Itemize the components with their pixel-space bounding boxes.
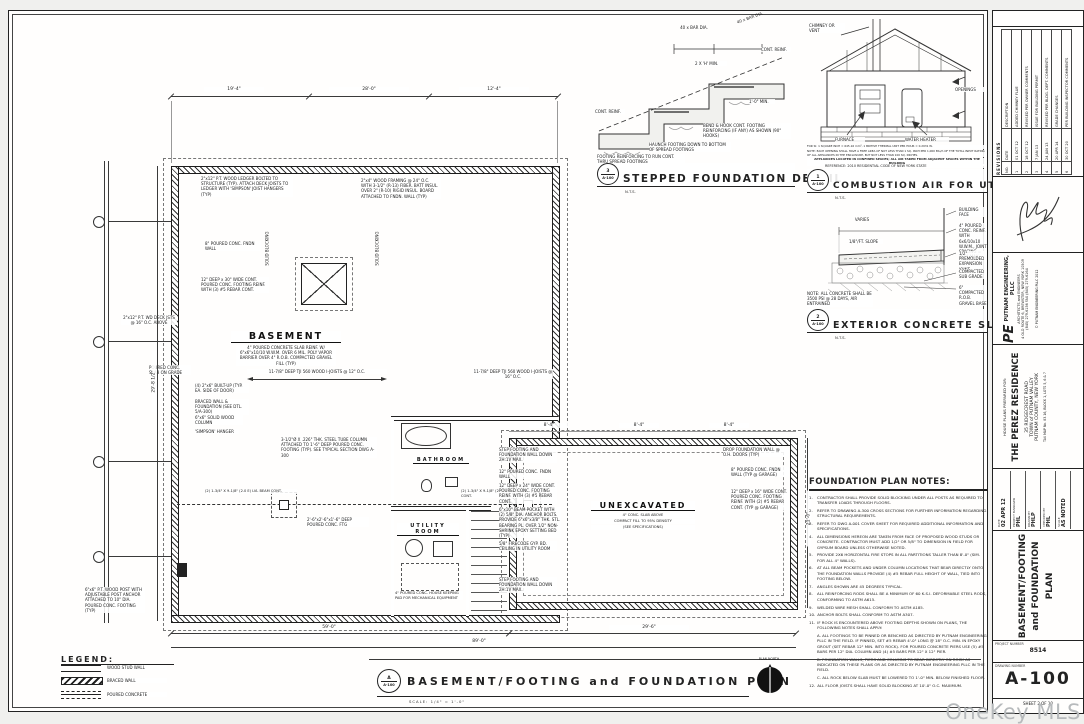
slab-detail-title: 2A-100 EXTERIOR CONCRETE SLAB DTL. — [807, 309, 987, 333]
dim-bottom-seg2: 29'-6" — [609, 625, 689, 630]
wood-post-note: 6"x6" P.T. WOOD POST WITH ADJUSTABLE POS… — [85, 587, 145, 613]
plan-north-label: PLAN NORTH — [749, 657, 789, 661]
concrete-psi-note: NOTE: ALL CONCRETE SHALL BE 3500 PSI @ 2… — [807, 291, 873, 307]
notes-title: FOUNDATION PLAN NOTES: — [809, 477, 987, 491]
deck-post — [93, 456, 105, 468]
utility-equipment-unit — [433, 541, 453, 557]
dim-line-overall — [171, 647, 796, 648]
step-bend-note: BEND & HOOK CONT. FOOTING REINFORCING (I… — [703, 123, 791, 139]
unexcavated-note-2: COMPACT FILL TO 95% DENSITY — [591, 519, 695, 524]
firm-name: PUTNAM ENGINEERING, PLLC — [1004, 255, 1016, 322]
dim-garage-2: 8'-4" — [619, 423, 659, 428]
tb-info-rotated: DATE 02 APR 12 PROJECT MANAGER PHL DRAWN… — [996, 471, 1078, 529]
lvl-beam-line — [177, 504, 552, 505]
tb-project-number-section: PROJECT NUMBER 8514 — [993, 641, 1083, 663]
note-item: A. ALL FOOTINGS TO BE PINNED OR BENCHED … — [809, 633, 987, 654]
wall-12-note: 12" POURED CONC. FNDN WALL — [499, 469, 551, 479]
building-face-label: BUILDING FACE — [959, 207, 987, 217]
note-item: 4.ALL DIMENSIONS HEREON ARE TAKEN FROM F… — [809, 534, 987, 550]
legend-label-braced: BRACED WALL — [107, 678, 167, 683]
openings-label: OPENINGS — [955, 87, 985, 92]
dim-left: 29'-8 1/2" — [152, 351, 157, 413]
ledger-note: 2"x12" P.T. WOOD LEDGER BOLTED TO STRUCT… — [201, 176, 293, 197]
note-item: 7.ANGLES SHOWN ARE 45 DEGREES TYPICAL. — [809, 584, 987, 589]
detail-scale: N.T.S. — [835, 195, 846, 200]
wood-column-block — [177, 563, 187, 577]
room-label-basement: BASEMENT — [231, 331, 341, 343]
slab-detail-drawing — [804, 203, 974, 303]
tb-revisions-rotated: REVISIONS NO. DATE DESCRIPTION 101 OCT 1… — [996, 29, 1078, 175]
deck-post — [93, 216, 105, 228]
drawing-number-value: A-100 — [993, 669, 1083, 689]
rev-col-no: NO. — [1002, 162, 1012, 175]
lvl-beam-note: (2) 1-3/4" X 9-1/8" (2.0 E) LVL BEAM CON… — [205, 489, 297, 494]
note-item: 9.WELDED WIRE MESH SHALL CONFORM TO ASTM… — [809, 605, 987, 610]
deck-tie — [108, 221, 171, 222]
garage-wall-note: 8" POURED CONC. FNDN WALL (TYP @ GARAGE) — [731, 467, 789, 477]
tb-drawing-number-section: DRAWING NUMBER A-100 — [993, 663, 1083, 699]
plan-scale: SCALE: 1/4" = 1'-0" — [409, 699, 465, 704]
dim-bottom-seg1: 59'-0" — [289, 625, 369, 630]
plan-marker: AA-100 — [377, 669, 401, 693]
tick — [793, 630, 799, 636]
note-item: 6.AT ALL BEAM POCKETS AND UNDER COLUMN L… — [809, 565, 987, 581]
step-2h-label: 2 X 'H' MIN. — [695, 61, 727, 66]
sink — [445, 477, 458, 487]
legend-label-stud: WOOD STUD WALL — [107, 665, 167, 670]
slab-slope-label: 1/8"/FT. SLOPE — [849, 239, 883, 244]
revisions-header-row: NO. DATE DESCRIPTION — [1002, 30, 1012, 175]
title-block: REVISIONS NO. DATE DESCRIPTION 101 OCT 1… — [992, 10, 1084, 714]
note-item: 3.REFER TO DWG A-001 COVER SHEET FOR REQ… — [809, 521, 987, 532]
tb-drawing-title-rotated: BASEMENT/FOOTING and FOUNDATION PLAN — [996, 533, 1078, 639]
footing-30-note: 12" DEEP x 30" WIDE CONT. POURED CONC. F… — [201, 277, 269, 293]
furnace-label: FURNACE — [835, 137, 865, 142]
simpson-hanger-note: 'SIMPSON' HANGER — [195, 429, 239, 434]
slab-varies-dim: VARIES — [847, 217, 877, 222]
note-item: 10.ANCHOR BOLTS SHALL CONFORM TO ASTM A3… — [809, 612, 987, 617]
garage-footing-note: 12" DEEP x 16" WIDE CONT. POURED CONC. F… — [731, 489, 789, 510]
framing-2x4-note: 2"x4" WOOD FRAMING @ 24" O.C. WITH 3-1/2… — [361, 178, 441, 199]
basement-wall-bottom — [171, 615, 560, 623]
gravel-base-note: 6" COMPACTED R.O.B. GRAVEL BASE — [959, 285, 987, 306]
deck-post — [93, 336, 105, 348]
deck-post — [93, 551, 105, 563]
revisions-rows: 101 OCT 12ADDED CHIMNEY FLUE 218 OCT 12R… — [1012, 30, 1072, 175]
revision-row: 424 JAN 13REVISED PER BLDG. DEPT. COMMEN… — [1042, 30, 1052, 175]
beam-pocket-note: 6"x10" BEAM POCKET WITH (2) 5/8" DIA. AN… — [499, 507, 561, 538]
signature-scribble — [993, 177, 1079, 251]
note-item: C. ALL ROCK BELOW SLAB MUST BE LOWERED T… — [809, 675, 987, 680]
combustion-air-drawing — [807, 19, 985, 145]
combustion-detail-title: 1A-100 COMBUSTION AIR FOR UTILITY ROOM — [807, 169, 987, 193]
fireplace — [301, 263, 347, 305]
chimney-label: CHIMNEY OR VENT — [809, 23, 845, 33]
garage-wall-top — [509, 438, 798, 446]
stepped-detail-title: 3A-100 STEPPED FOUNDATION DETAIL — [597, 163, 795, 187]
deck-joist-note: 2"x12" P.T. WD DECK JSTS @ 16" O.C. ABOV… — [121, 315, 177, 325]
partition-stair — [466, 506, 469, 617]
detail-marker-3: 3A-100 — [597, 163, 619, 185]
basement-slab-note: 4" POURED CONCRETE SLAB REINF. W/ 6"x6"x… — [236, 345, 336, 366]
note-item: 2.REFER TO DRAWING A-300 CROSS SECTIONS … — [809, 508, 987, 519]
step-cont-reinf-label: CONT. REINF. — [595, 109, 625, 114]
note-item: 12.ALL FLOOR JOISTS SHALL HAVE SOLID BLO… — [809, 683, 987, 688]
north-arrow-icon — [755, 663, 785, 695]
firm-monogram: PE — [1002, 325, 1017, 343]
solid-blocking-label: SOLID BLOCKING — [264, 222, 269, 266]
basement-wall-left — [171, 166, 179, 623]
legend-label-poured: POURED CONCRETE — [107, 692, 167, 697]
room-label-bathroom: BATHROOM — [413, 457, 469, 464]
info-row: DRAWN BY PHLP — [1026, 471, 1041, 529]
revision-row: 37 JAN 13ISSUE FOR BUILDING PERMIT — [1032, 30, 1042, 175]
tb-top-box — [993, 11, 1083, 27]
dim-line-left — [157, 166, 158, 621]
housekeeping-pad — [401, 563, 459, 591]
garage-wall-right — [790, 438, 798, 610]
tb-signature-section — [993, 177, 1083, 253]
tick — [555, 93, 561, 99]
note-item: 1.CONTRACTOR SHALL PROVIDE SOLID BLOCKIN… — [809, 495, 987, 506]
step-cont-reinf-label: CONT. REINF. — [761, 47, 791, 52]
revision-row: 101 OCT 12ADDED CHIMNEY FLUE — [1012, 30, 1022, 175]
dim-ext — [171, 101, 172, 163]
arrowhead-left — [247, 377, 253, 381]
room-label-utility: UTILITY ROOM — [397, 523, 459, 536]
legend-symbol-braced — [61, 677, 103, 685]
arrowhead-right — [381, 377, 387, 381]
legend: LEGEND: WOOD STUD WALL BRACED WALL POURE… — [61, 647, 261, 666]
water-heater-label: WATER HEATER — [905, 137, 949, 142]
step-1ft-label: 1'-0" MIN. — [749, 99, 775, 104]
project-number-value: 8514 — [993, 647, 1083, 654]
firm-phone: (845) 279-6156 FAX (845) 279-6164 — [1025, 255, 1029, 343]
fndn-wall-8-note: 8" POURED CONC. FNDN WALL — [205, 241, 261, 251]
deck-tie — [108, 556, 171, 557]
housekeeping-note: 4" POURED CONC. HOUSE KEEPING PAD FOR ME… — [395, 591, 463, 600]
step-haunch-note: HAUNCH FOOTING DOWN TO BOTTOM OF SPREAD … — [649, 142, 731, 152]
room-label-unexcavated: UNEXCAVATED — [591, 501, 695, 511]
revision-row: 630 OCT 20PER BUILDING INSPECTOR COMMENT… — [1062, 30, 1072, 175]
detail-scale: N.T.S. — [625, 189, 636, 194]
project-tax-map: TAX MAP No. 83.16, BLOCK 1, LOTS 5, 6 & … — [1043, 347, 1047, 467]
step-footing-note: STEP FOOTING AND FOUNDATION WALL DOWN 2H… — [499, 447, 557, 463]
legend-symbol-stud — [61, 665, 101, 672]
column-footing-note: 2'-6"x2'-6"x1'-6" DEEP POURED CONC. FTG — [307, 517, 369, 527]
utility-equipment-tank — [405, 539, 423, 557]
prepared-for-label: HOUSE PLANS PREPARED FOR: — [1002, 347, 1007, 467]
info-row: SCALE AS NOTED — [1056, 471, 1071, 529]
partition-bath-left — [391, 416, 394, 617]
revisions-table: NO. DATE DESCRIPTION 101 OCT 12ADDED CHI… — [1001, 29, 1072, 175]
legend-symbol-poured — [61, 691, 101, 699]
firm-copyright: © PUTNAM ENGINEERING PLLC 2012 — [1035, 255, 1039, 343]
note-item: 11.IF ROCK IS ENCOUNTERED ABOVE FOOTING … — [809, 620, 987, 631]
detail-marker-1: 1A-100 — [807, 169, 829, 191]
code-reference: REFERENCE: 2010 RESIDENTIAL CODE OF NEW … — [825, 164, 985, 168]
wood-column-note: 6"x6" SOLID WOOD COLUMN — [195, 415, 243, 425]
info-row: CHECKED BY PHL — [1041, 471, 1056, 529]
deck-tie — [108, 461, 171, 462]
bottom-separator — [369, 659, 981, 660]
dim-garage-3: 8'-4" — [709, 423, 749, 428]
unexcavated-note-1: 4" CONC. SLAB ABOVE — [591, 513, 695, 518]
drawing-sheet: BASEMENT 4" POURED CONCRETE SLAB REINF. … — [8, 10, 988, 712]
dim-top-2: 28'-0" — [329, 87, 409, 92]
legend-title: LEGEND: — [61, 655, 174, 665]
subgrade-note: COMPACTED SUB GRADE — [959, 269, 987, 279]
step-footing-note: STEP FOOTING AND FOUNDATION WALL DOWN 2H… — [499, 577, 557, 593]
plan-title-bar: AA-100 BASEMENT/FOOTING and FOUNDATION P… — [377, 669, 749, 697]
firecode-note: 5/8" FIRECODE GYP. BD. CEILING IN UTILIT… — [499, 541, 557, 551]
dim-top-3: 12'-4" — [459, 87, 529, 92]
braced-wall-note: BRACED WALL & FOUNDATION (SEE DTL. 5/A-3… — [195, 399, 249, 415]
built-up-note: (4) 2"x6" BUILT-UP (TYP. EA. SIDE OF DOO… — [195, 383, 249, 393]
plan-title-text: BASEMENT/FOOTING and FOUNDATION PLAN — [407, 675, 792, 688]
tb-project-rotated: HOUSE PLANS PREPARED FOR: THE PEREZ RESI… — [996, 347, 1078, 467]
joist-note-16: 11-7/8" DEEP TJI 560 WOOD I-JOISTS @ 16"… — [473, 369, 553, 379]
toilet — [421, 479, 432, 492]
dim-ext — [557, 101, 558, 163]
steel-column — [279, 500, 289, 510]
dim-line-bottom — [171, 633, 796, 634]
detail-marker-2: 2A-100 — [807, 309, 829, 331]
note-item: 5.PROVIDE 2X6 HORIZONTAL FIRE STOPS IN A… — [809, 552, 987, 563]
dim-line-top — [171, 96, 558, 97]
partition-bath-top — [391, 416, 558, 421]
tb-firm-rotated: PE PUTNAM ENGINEERING, PLLC ARCHITECTS a… — [996, 255, 1078, 343]
revision-row: 218 OCT 12REVISED PER OWNER COMMENTS — [1022, 30, 1032, 175]
dim-top-1: 19'-4" — [204, 87, 264, 92]
rev-col-date: DATE — [1002, 129, 1012, 162]
deck-edge-line — [108, 161, 109, 623]
footing-24-note: 12" DEEP x 24" WIDE CONT. POURED CONC. F… — [499, 483, 557, 504]
info-row: DATE 02 APR 12 — [996, 471, 1011, 529]
dim-overall: 89'-0" — [439, 639, 519, 644]
rev-col-desc: DESCRIPTION — [1002, 30, 1012, 129]
dim-line-garage — [509, 431, 796, 432]
steel-column-note: 3-1/2"Ø X .226" THK. STEEL TUBE COLUMN A… — [281, 437, 377, 458]
info-row: PROJECT MANAGER PHL — [1011, 471, 1026, 529]
step-bar-dia-label: 40 x BAR DIA. — [669, 25, 719, 30]
basement-wall-right — [552, 166, 560, 446]
watermark: OneKey MLS — [945, 700, 1081, 724]
unexcavated-note-3: (SEE SPECIFICATIONS) — [591, 525, 695, 530]
note-item: 8.ALL REINFORCING RODS SHALL BE A MINIMU… — [809, 591, 987, 602]
basement-wall-top — [171, 166, 560, 174]
garage-wall-bottom — [509, 602, 798, 610]
project-name: THE PEREZ RESIDENCE — [1011, 347, 1021, 467]
detail-scale: N.T.S. — [835, 335, 846, 340]
revision-row: 520 APR 14GRADE CHANGES — [1052, 30, 1062, 175]
deck-tie — [108, 341, 171, 342]
joist-arrow — [253, 379, 381, 380]
tb-drawing-title: BASEMENT/FOOTING and FOUNDATION PLAN — [1017, 533, 1058, 639]
joist-note-12: 11-7/8" DEEP TJI 560 WOOD I-JOISTS @ 12"… — [247, 369, 387, 374]
solid-blocking-label: SOLID BLOCKING — [374, 222, 379, 266]
dim-garage-1: 8'-4" — [529, 423, 569, 428]
project-addr3: PUTNAM COUNTY, NEW YORK — [1035, 347, 1040, 467]
bathtub-basin — [405, 426, 447, 446]
drop-wall-note: DROP FOUNDATION WALL @ O.H. DOORS (TYP) — [723, 447, 789, 457]
